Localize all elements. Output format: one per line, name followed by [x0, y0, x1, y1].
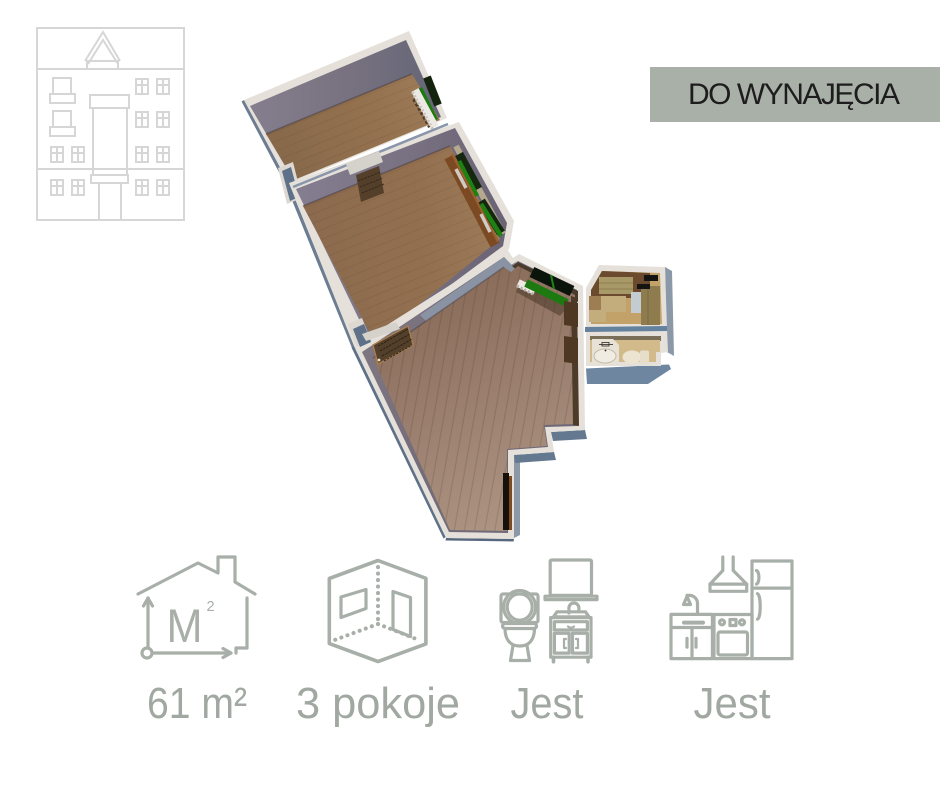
- svg-text:61 m²: 61 m²: [147, 679, 247, 728]
- svg-text:Jest: Jest: [694, 679, 771, 728]
- svg-text:M: M: [167, 599, 203, 652]
- svg-text:3 pokoje: 3 pokoje: [296, 679, 460, 728]
- svg-text:DO WYNAJĘCIA: DO WYNAJĘCIA: [688, 78, 902, 111]
- svg-text:2: 2: [206, 599, 214, 615]
- svg-text:Jest: Jest: [511, 679, 584, 728]
